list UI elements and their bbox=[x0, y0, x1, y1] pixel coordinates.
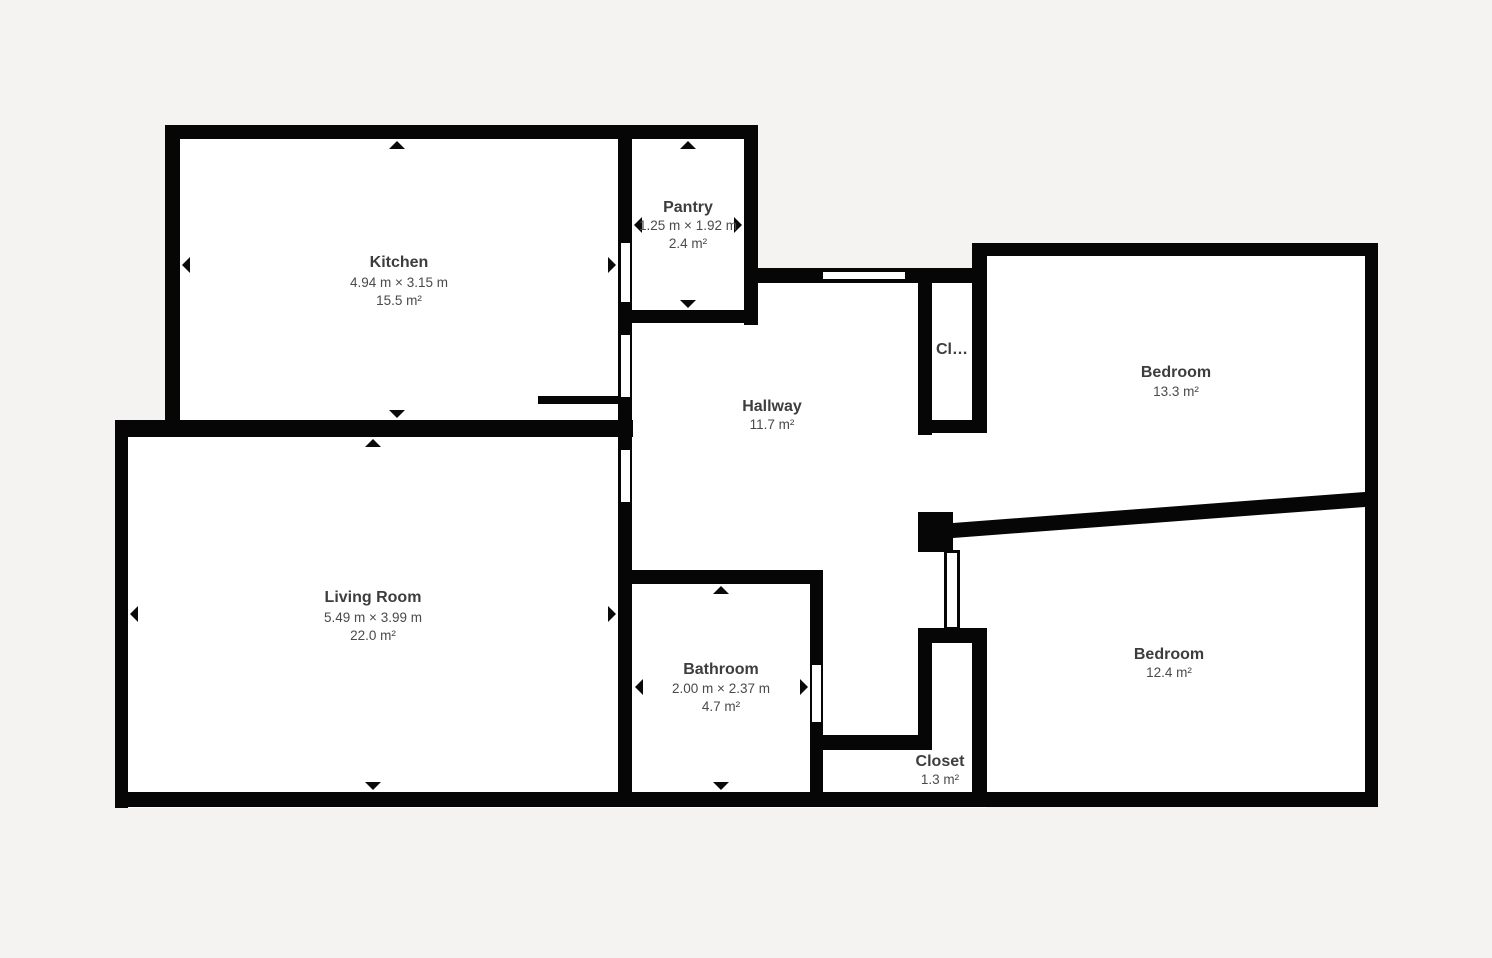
bedroom-top-left-wall bbox=[972, 243, 987, 433]
closet-left-wall bbox=[918, 628, 932, 750]
bathroom-dimensions: 2.00 m × 2.37 m bbox=[672, 681, 770, 696]
bedroom-bottom-label: Bedroom bbox=[1134, 646, 1204, 663]
bathroom-label: Bathroom bbox=[683, 661, 759, 678]
hallway-right-wall bbox=[918, 268, 932, 435]
pantry-right-wall bbox=[744, 125, 758, 325]
bedroom-top-outer-wall bbox=[972, 243, 1378, 256]
kitchen-pantry-top-wall bbox=[165, 125, 758, 139]
hallway-window bbox=[823, 272, 905, 279]
bedroom-bottom-area: 12.4 m² bbox=[1146, 665, 1192, 680]
living-room-label: Living Room bbox=[325, 589, 422, 606]
bedrooms-right-outer-wall bbox=[1365, 243, 1378, 807]
bathroom-top-wall bbox=[618, 570, 823, 584]
bathroom-area: 4.7 m² bbox=[702, 699, 741, 714]
kitchen-label: Kitchen bbox=[370, 254, 429, 271]
kitchen-living-divider-wall bbox=[115, 420, 633, 437]
kitchen-half-wall-stub bbox=[538, 396, 618, 404]
bottom-outer-wall bbox=[115, 792, 1378, 807]
living-room-area: 22.0 m² bbox=[350, 628, 396, 643]
closet-hallway-wall bbox=[823, 735, 932, 750]
pantry-label: Pantry bbox=[663, 199, 713, 216]
closet-right-wall bbox=[972, 628, 987, 796]
kitchen-pantry-door bbox=[621, 243, 630, 302]
kitchen-area: 15.5 m² bbox=[376, 293, 422, 308]
bedroom-top-door bbox=[921, 435, 930, 512]
closet-door-leaf bbox=[947, 553, 957, 627]
living-room-hallway-door bbox=[621, 450, 630, 502]
living-room-left-wall bbox=[115, 420, 128, 808]
hallway-label: Hallway bbox=[742, 398, 802, 415]
bedroom-top-area: 13.3 m² bbox=[1153, 384, 1199, 399]
hallway-corner-block bbox=[918, 512, 953, 552]
pantry-area: 2.4 m² bbox=[669, 236, 708, 251]
closet-label: Closet bbox=[916, 753, 966, 770]
kitchen-hallway-door bbox=[621, 335, 630, 397]
hallway-area: 11.7 m² bbox=[750, 417, 795, 432]
bedroom-top-label: Bedroom bbox=[1141, 364, 1211, 381]
floorplan-canvas: Kitchen 4.94 m × 3.15 m 15.5 m² Pantry 1… bbox=[0, 0, 1492, 958]
pantry-dimensions: 1.25 m × 1.92 m bbox=[639, 218, 737, 233]
living-room-dimensions: 5.49 m × 3.99 m bbox=[324, 610, 422, 625]
bathroom-door bbox=[812, 665, 821, 722]
kitchen-left-wall bbox=[165, 125, 180, 420]
closet-small-label: Cl… bbox=[936, 341, 968, 358]
kitchen-dimensions: 4.94 m × 3.15 m bbox=[350, 275, 448, 290]
room-closet-small: Cl… bbox=[936, 341, 968, 358]
pantry-bottom-wall bbox=[618, 310, 758, 323]
closet-area: 1.3 m² bbox=[921, 772, 960, 787]
